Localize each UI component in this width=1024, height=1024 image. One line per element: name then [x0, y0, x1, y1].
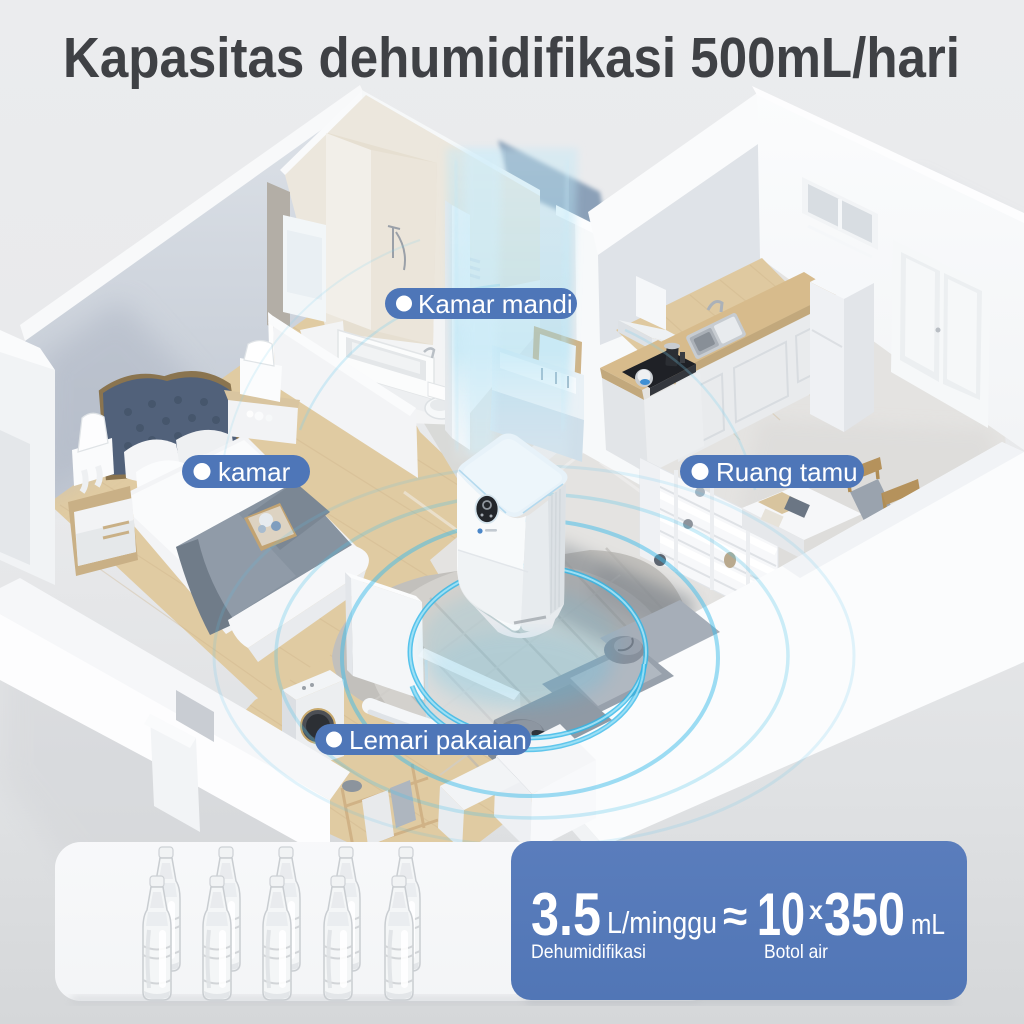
svg-text:Ruang tamu: Ruang tamu — [716, 457, 858, 487]
svg-text:Dehumidifikasi: Dehumidifikasi — [531, 941, 646, 963]
svg-text:L/minggu: L/minggu — [607, 905, 717, 940]
svg-text:10: 10 — [757, 881, 805, 948]
svg-text:Botol air: Botol air — [764, 941, 828, 963]
svg-text:Lemari pakaian: Lemari pakaian — [349, 725, 527, 755]
svg-text:Kamar mandi: Kamar mandi — [418, 289, 573, 319]
svg-text:≈: ≈ — [723, 892, 747, 941]
svg-text:Kapasitas dehumidifikasi 500mL: Kapasitas dehumidifikasi 500mL/hari — [63, 26, 960, 90]
svg-text:3.5: 3.5 — [531, 881, 601, 948]
svg-text:350: 350 — [824, 881, 905, 948]
svg-text:mL: mL — [911, 909, 945, 941]
svg-text:kamar: kamar — [218, 457, 291, 487]
svg-text:x: x — [809, 897, 823, 925]
